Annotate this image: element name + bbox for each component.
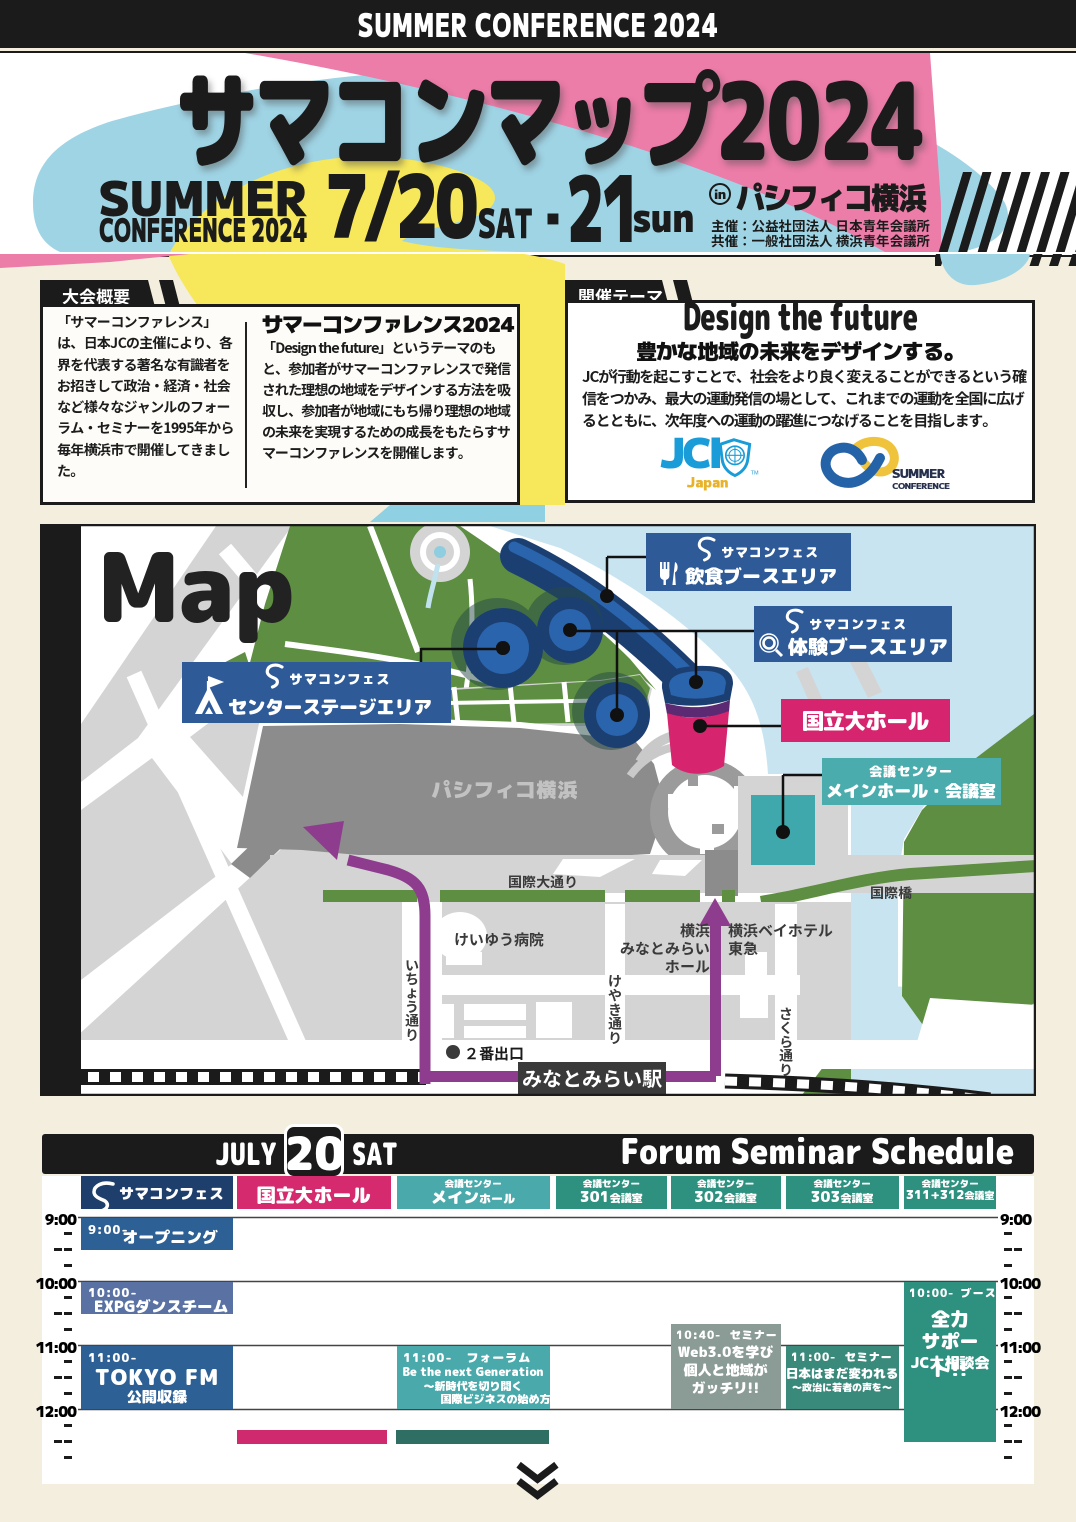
svg-text:東急: 東急 <box>728 938 758 959</box>
svg-text:体験ブースエリア: 体験ブースエリア <box>788 633 948 661</box>
svg-text:センターステージエリア: センターステージエリア <box>228 695 432 721</box>
svg-text:Map: Map <box>97 524 292 653</box>
svg-text:いちょう通り: いちょう通り <box>402 957 422 1042</box>
svg-text:会議センター: 会議センター <box>869 763 953 781</box>
svg-text:Japan: Japan <box>687 472 729 492</box>
svg-text:けやき通り: けやき通り <box>605 974 625 1045</box>
svg-text:２番出口: ２番出口 <box>464 1043 524 1064</box>
svg-text:けいゆう病院: けいゆう病院 <box>454 929 544 950</box>
svg-text:みなとみらい駅: みなとみらい駅 <box>522 1063 663 1092</box>
svg-text:飲食ブースエリア: 飲食ブースエリア <box>685 564 837 590</box>
svg-text:さくら通り: さくら通り <box>776 1006 796 1077</box>
svg-text:国際大通り: 国際大通り <box>508 872 578 892</box>
svg-text:メインホール・会議室: メインホール・会議室 <box>826 780 996 803</box>
svg-text:国際橋: 国際橋 <box>870 883 912 903</box>
svg-text:サマコンフェス: サマコンフェス <box>289 670 391 689</box>
svg-text:パシフィコ横浜: パシフィコ横浜 <box>432 774 579 803</box>
svg-text:TM: TM <box>751 471 759 477</box>
svg-text:ホール: ホール <box>665 956 710 977</box>
svg-text:サマコンフェス: サマコンフェス <box>721 544 819 562</box>
svg-text:CONFERENCE: CONFERENCE <box>892 479 950 492</box>
svg-text:サマコンフェス: サマコンフェス <box>809 616 907 634</box>
svg-text:国立大ホール: 国立大ホール <box>802 706 929 737</box>
